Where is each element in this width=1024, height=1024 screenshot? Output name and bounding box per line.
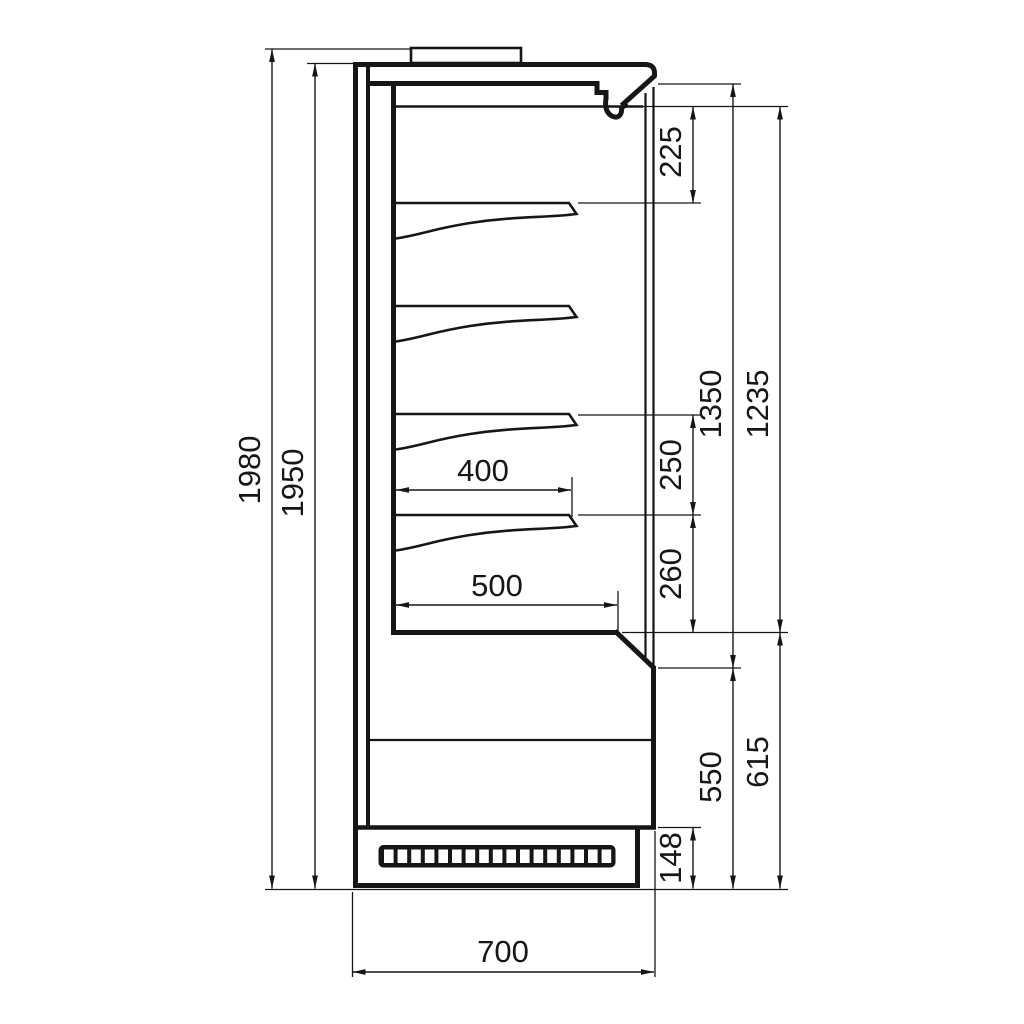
base-diagonal — [615, 631, 655, 669]
dim-label-shelf-pitch-upper: 250 — [653, 439, 688, 491]
dim-label-display-height: 1235 — [740, 370, 775, 439]
grille-slots — [384, 850, 611, 864]
dim-label-base-front-height: 550 — [693, 751, 728, 803]
cabinet-section-drawing: 1980 1950 225 250 260 1350 1235 550 615 … — [0, 0, 1024, 1024]
dim-label-overall-height: 1980 — [232, 436, 267, 505]
shelves — [396, 203, 577, 551]
dimension-lines — [272, 49, 780, 972]
shelf-4 — [396, 515, 577, 551]
dim-label-plinth-height: 148 — [653, 832, 688, 884]
dim-label-shelf-depth: 400 — [457, 453, 509, 488]
dim-label-shelf-pitch-lower: 260 — [653, 548, 688, 600]
dim-label-base-section-height: 615 — [740, 736, 775, 788]
top-cap — [411, 48, 521, 63]
extension-lines — [265, 49, 788, 977]
technical-drawing: 1980 1950 225 250 260 1350 1235 550 615 … — [0, 0, 1024, 1024]
dimension-arrows — [269, 49, 783, 975]
shelf-3 — [396, 414, 577, 450]
dim-label-canopy-to-first-shelf: 225 — [653, 126, 688, 178]
shelf-2 — [396, 306, 577, 342]
dim-label-bottom-shelf-depth: 500 — [471, 568, 523, 603]
plinth — [353, 826, 656, 886]
shelf-1 — [396, 203, 577, 239]
dim-label-overall-depth: 700 — [477, 934, 529, 969]
dim-label-cabinet-height: 1950 — [275, 449, 310, 518]
dim-label-opening-height: 1350 — [693, 370, 728, 439]
canopy-ceiling — [369, 84, 606, 101]
ventilation-grille — [379, 845, 616, 868]
